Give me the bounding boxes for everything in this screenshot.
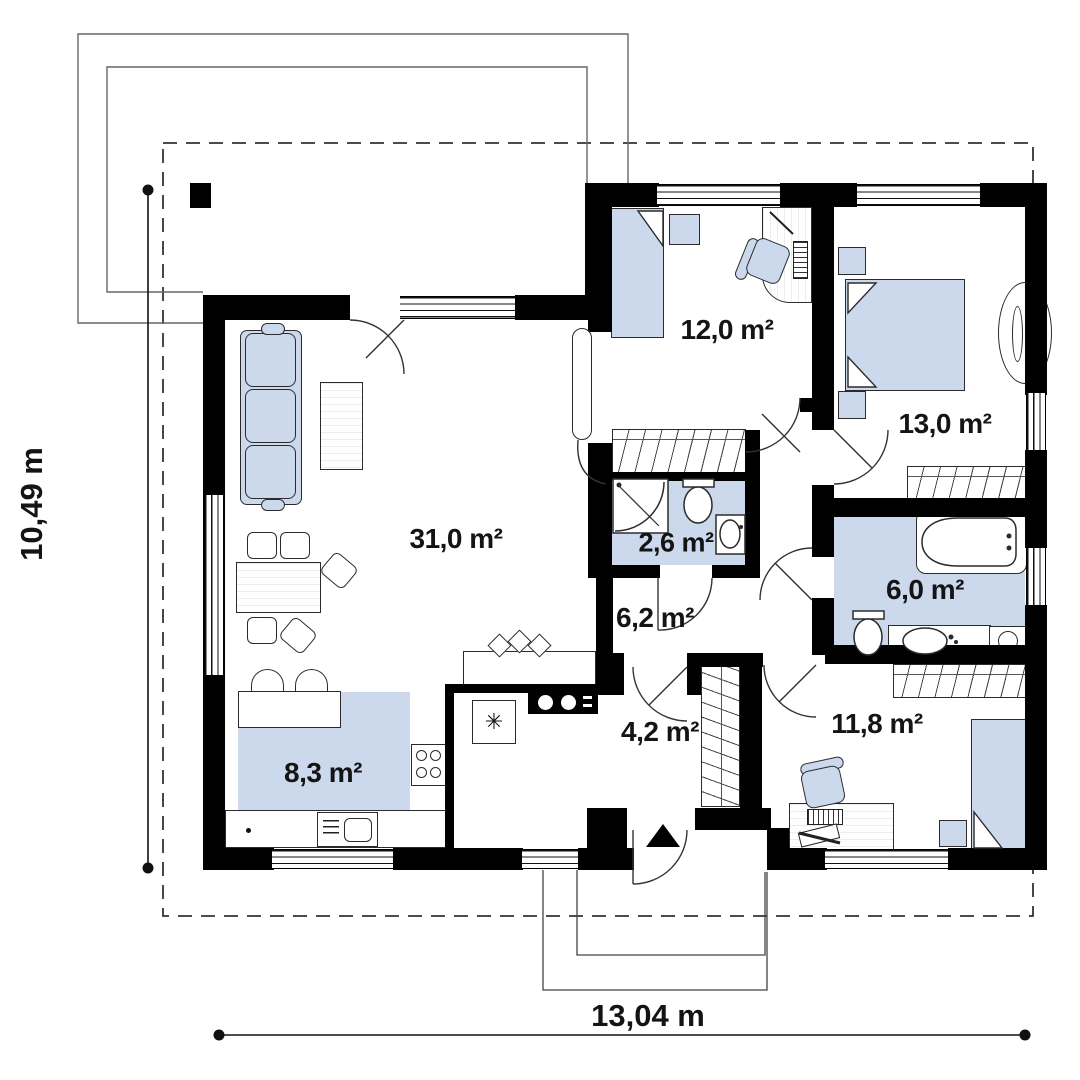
window [825, 849, 948, 869]
window [204, 495, 224, 675]
sofa [240, 330, 302, 505]
nightstand [669, 214, 700, 245]
floor-plan: ✳ [0, 0, 1080, 1080]
dining-chair [278, 616, 318, 656]
sofa-cushion [245, 389, 296, 443]
burner [416, 750, 427, 761]
wall-top-living [203, 295, 350, 320]
wall-stub [687, 653, 701, 695]
sofa-cushion [245, 445, 296, 499]
appliance-slot [583, 696, 592, 699]
wall-closet12 [604, 472, 750, 481]
terrace-outline [78, 34, 628, 323]
kitchen-bar-counter [238, 691, 341, 728]
dish-rack [323, 820, 339, 838]
dimension-line-left [143, 185, 154, 874]
wall-bed12-bed13 [812, 207, 834, 400]
room-label-bathroom: 6,0 m² [886, 574, 964, 606]
nightstand [838, 247, 866, 275]
counter-knob [246, 828, 251, 833]
radiator-core [1012, 306, 1023, 362]
office-chair-seat [799, 764, 846, 809]
stove [411, 744, 446, 786]
porch-column [190, 183, 211, 208]
wall-wc-right [745, 430, 760, 578]
wall-hall-13 [812, 410, 834, 430]
bed-single [971, 719, 1026, 851]
sofa-cushion [245, 333, 296, 387]
wall-top [780, 183, 857, 207]
burner [416, 767, 427, 778]
sofa-armrest [261, 323, 285, 335]
room-label-hallway: 6,2 m² [616, 602, 694, 634]
wall-right [1025, 605, 1047, 870]
appliance-dial [538, 695, 553, 710]
wall-bottom [203, 848, 274, 870]
wall-bath-11 [825, 645, 1025, 664]
wall-13-bath [834, 498, 1025, 517]
window [657, 184, 780, 206]
window [857, 184, 980, 206]
desk [789, 803, 894, 852]
boiler-unit: ✳ [472, 700, 516, 744]
window [1026, 548, 1046, 605]
keyboard [807, 809, 843, 825]
door-leaf [572, 328, 592, 440]
counter-appliance [528, 691, 598, 714]
wall-stub [596, 653, 624, 695]
bed-single [611, 208, 664, 338]
sink-bowl [344, 818, 372, 842]
entrance-arrow-icon [646, 824, 680, 847]
wall-wc-bottom [588, 565, 660, 578]
sofa-armrest [261, 499, 285, 511]
closet-bedroom12 [612, 429, 746, 474]
keyboard [793, 241, 808, 279]
window [272, 849, 393, 869]
dimension-width: 13,04 m [548, 998, 748, 1034]
dining-chair [280, 532, 310, 559]
bar-stool [295, 669, 328, 691]
wall-living-hall [588, 443, 612, 576]
room-label-living: 31,0 m² [410, 523, 503, 555]
wall-bottom [767, 848, 827, 870]
wall-wc-bottom [712, 565, 760, 578]
wall-fill [767, 828, 789, 850]
wall-entrance-pillar [587, 808, 627, 850]
dimension-height: 10,49 m [14, 394, 50, 614]
appliance-dial [561, 695, 576, 710]
window [522, 849, 578, 869]
dining-chair [247, 532, 277, 559]
dining-table [236, 562, 321, 613]
wall-hall-bath [812, 485, 834, 557]
nightstand [939, 820, 967, 847]
wall-right [1025, 183, 1047, 395]
wall-right [1025, 450, 1047, 548]
hall-closet [701, 655, 740, 807]
room-label-kitchen: 8,3 m² [284, 757, 362, 789]
kitchen-sink-unit [317, 812, 378, 847]
coffee-table [320, 382, 363, 470]
room-label-bedroom13: 13,0 m² [899, 408, 992, 440]
room-label-vestibule: 4,2 m² [621, 716, 699, 748]
wall-top [585, 183, 659, 207]
wall-entrance-recess [695, 808, 771, 830]
wardrobe-bedroom11 [893, 664, 1027, 698]
room-label-bedroom12: 12,0 m² [681, 314, 774, 346]
decor-plant [507, 629, 531, 653]
wall-top-living [515, 295, 588, 320]
bar-stool [251, 669, 284, 691]
window [1026, 393, 1046, 450]
wall-living-vestibule-h [445, 684, 598, 693]
wall-bottom [948, 848, 1047, 870]
dining-chair [319, 551, 359, 591]
wall-closet-right [740, 653, 762, 810]
wall-living-hall [588, 318, 612, 332]
burner [430, 750, 441, 761]
appliance-slot [583, 704, 592, 707]
wall-kitchen-vestibule [445, 692, 454, 850]
room-label-wc: 2,6 m² [638, 528, 713, 559]
porch-outline [543, 870, 767, 990]
tv-cabinet [463, 651, 596, 687]
window [400, 296, 515, 319]
nightstand [838, 391, 866, 419]
drawing-tablet [798, 823, 840, 847]
wall-bottom [393, 848, 523, 870]
wall-bottom [578, 848, 634, 870]
bathtub [916, 510, 1027, 574]
dining-chair [247, 617, 277, 644]
bed-double [845, 279, 965, 391]
room-label-bedroom11: 11,8 m² [831, 708, 922, 740]
burner [430, 767, 441, 778]
